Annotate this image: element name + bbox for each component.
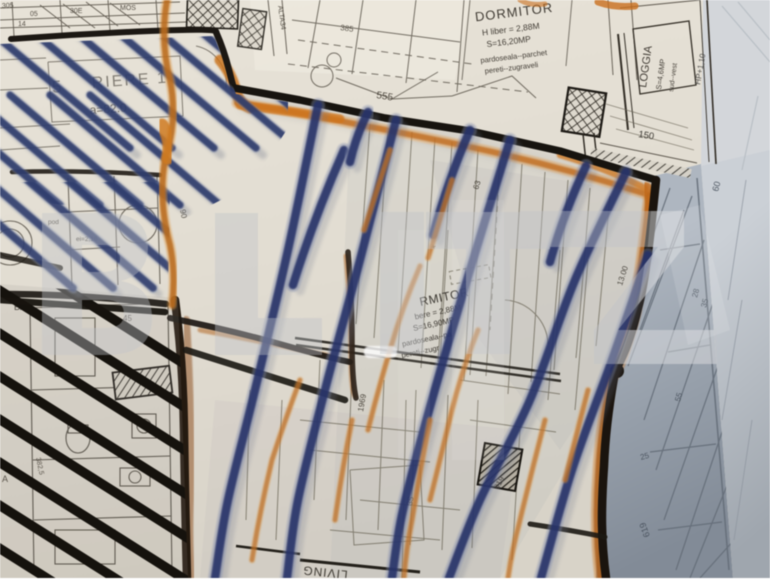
svg-text:30E: 30E: [70, 8, 83, 15]
svg-text:305: 305: [2, 2, 14, 10]
svg-text:14: 14: [18, 21, 26, 28]
svg-text:MOS: MOS: [120, 5, 136, 12]
svg-text:385: 385: [340, 23, 355, 34]
svg-text:05: 05: [30, 11, 38, 18]
